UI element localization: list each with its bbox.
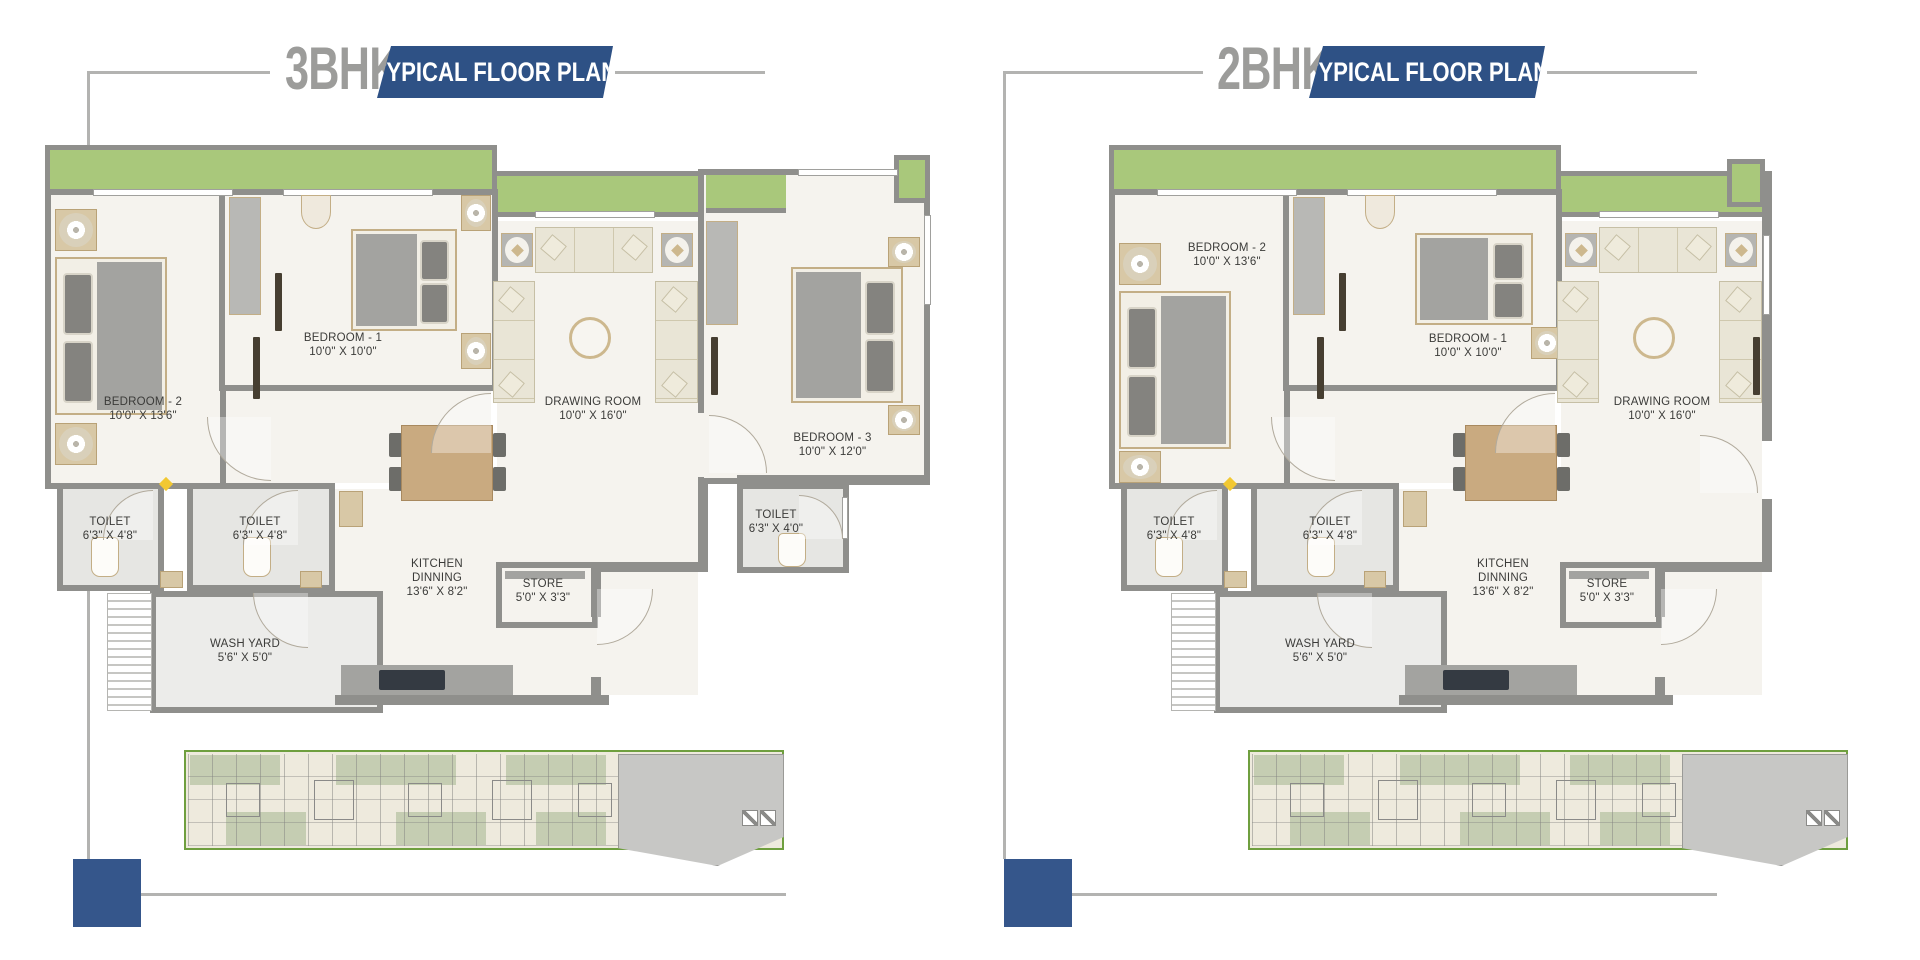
basin-fixture	[160, 571, 183, 588]
cushion	[1562, 371, 1589, 398]
tv-icon	[1317, 337, 1324, 399]
room-dims: 6'3" X 4'8"	[1114, 529, 1234, 543]
sofa-left	[493, 281, 535, 403]
basin-fixture	[1364, 571, 1386, 588]
room-dims: 6'3" X 4'0"	[716, 522, 836, 536]
room-label-bedroom3: BEDROOM - 310'0" X 12'0"	[760, 431, 905, 459]
wash-basin-icon	[1365, 195, 1395, 229]
pillow	[1493, 243, 1524, 280]
mattress	[356, 234, 417, 326]
nightstand	[55, 423, 97, 465]
keyplan-lift	[1824, 810, 1840, 826]
header-rule-right-2	[1547, 71, 1697, 74]
room-name: WASH YARD	[175, 637, 315, 651]
room-label-bedroom1: BEDROOM - 110'0" X 10'0"	[1398, 332, 1538, 360]
room-dims: 5'6" X 5'0"	[175, 651, 315, 665]
room-label-bedroom2: BEDROOM - 210'0" X 13'6"	[73, 395, 213, 423]
room-label-toilet-left: TOILET6'3" X 4'8"	[1114, 515, 1234, 543]
plan-title-banner-2bhk: TYPICAL FLOOR PLAN	[1309, 46, 1545, 98]
keyplan-core	[578, 783, 612, 817]
banner-text: TYPICAL FLOOR PLAN	[373, 57, 617, 88]
navy-corner-square-2	[1004, 859, 1072, 927]
chair	[1557, 467, 1570, 491]
room-dims: 5'0" X 3'3"	[1547, 591, 1667, 605]
pillow	[1493, 282, 1524, 319]
wall-drawing-right-lower	[1762, 499, 1772, 567]
nightstand	[461, 195, 491, 231]
banner-text: TYPICAL FLOOR PLAN	[1305, 57, 1549, 88]
window-bedroom3	[798, 169, 898, 176]
keyplan-lift	[1806, 810, 1822, 826]
lamp-icon	[892, 409, 916, 431]
room-dims: 10'0" X 12'0"	[760, 445, 905, 459]
wardrobe	[1293, 197, 1325, 315]
tv-icon	[1753, 337, 1760, 395]
nightstand	[888, 237, 920, 267]
nightstand	[1119, 243, 1161, 285]
keyplan-core	[1556, 780, 1596, 820]
bed-bedroom2	[1119, 291, 1231, 449]
tv-icon	[1339, 273, 1346, 331]
room-name: TOILET	[1114, 515, 1234, 529]
room-dims: 6'3" X 4'8"	[1270, 529, 1390, 543]
balcony-corner	[894, 155, 930, 203]
room-label-bedroom1: BEDROOM - 110'0" X 10'0"	[273, 331, 413, 359]
lamp-icon	[1123, 247, 1157, 281]
window-drawing-side	[1763, 235, 1770, 315]
stove-icon	[1443, 670, 1509, 690]
room-name: BEDROOM - 1	[273, 331, 413, 345]
chair	[493, 433, 506, 457]
keyplan-core	[408, 783, 442, 817]
window-drawing	[535, 211, 655, 218]
cushion	[1685, 234, 1712, 261]
window-bedroom2	[93, 189, 233, 196]
wardrobe	[229, 197, 261, 315]
chair	[1557, 433, 1570, 457]
pillow	[63, 273, 93, 336]
pillow	[1127, 307, 1157, 370]
cushion	[621, 234, 648, 261]
frame-bottom-line-2	[1072, 893, 1717, 896]
room-label-toilet-right: TOILET6'3" X 4'0"	[716, 508, 836, 536]
room-name: STORE	[1547, 577, 1667, 591]
lamp-icon	[1535, 331, 1559, 355]
room-dims: 6'3" X 4'8"	[200, 529, 320, 543]
key-plan-2bhk	[1248, 750, 1848, 850]
sofa-top	[1599, 227, 1717, 273]
toilet-wc-icon	[91, 537, 119, 577]
room-name: KITCHEN	[1433, 557, 1573, 571]
nightstand	[55, 209, 97, 251]
room-dims: 5'6" X 5'0"	[1250, 651, 1390, 665]
keyplan-lift	[760, 810, 776, 826]
key-plan-3bhk	[184, 750, 784, 850]
keyplan-lift	[742, 810, 758, 826]
room-name: BEDROOM - 3	[760, 431, 905, 445]
floor-plan-3bhk: BEDROOM - 210'0" X 13'6" BEDROOM - 110'0…	[43, 145, 938, 725]
room-name: KITCHEN	[367, 557, 507, 571]
lamp-icon	[59, 427, 93, 461]
keyplan-core	[1378, 780, 1418, 820]
mattress	[1420, 238, 1488, 320]
lamp-icon	[892, 241, 916, 263]
header-rule-right	[615, 71, 765, 74]
wall-drawing-right	[698, 482, 708, 568]
wall-kitchen-bottom	[1399, 695, 1673, 705]
kitchen-unit	[339, 491, 363, 527]
lamp-icon	[465, 337, 487, 365]
room-name: DRAWING ROOM	[523, 395, 663, 409]
room-name: BEDROOM - 2	[73, 395, 213, 409]
sofa-top	[535, 227, 653, 273]
balcony-bedrooms	[45, 145, 497, 195]
window-bedroom2	[1157, 189, 1297, 196]
nightstand	[461, 333, 491, 369]
room-label-drawing: DRAWING ROOM10'0" X 16'0"	[1592, 395, 1732, 423]
lamp-icon	[59, 213, 93, 247]
room-dims: 10'0" X 13'6"	[1157, 255, 1297, 269]
keyplan-core	[226, 783, 260, 817]
cushion	[1604, 234, 1631, 261]
pillow	[865, 281, 895, 335]
stove-icon	[379, 670, 445, 690]
balcony-bedrooms	[1109, 145, 1561, 195]
sofa-right	[655, 281, 698, 403]
cushion	[1725, 286, 1752, 313]
window-bedroom3-side	[924, 215, 931, 305]
pillow	[420, 283, 448, 324]
sofa-left	[1557, 281, 1599, 403]
room-label-store: STORE5'0" X 3'3"	[483, 577, 603, 605]
door-opening-bedroom3	[698, 413, 708, 477]
lamp-icon	[465, 199, 487, 227]
tv-icon	[711, 337, 718, 395]
round-table	[1633, 317, 1675, 359]
cushion	[498, 286, 525, 313]
room-dims: 10'0" X 10'0"	[273, 345, 413, 359]
room-dims: 10'0" X 16'0"	[1592, 409, 1732, 423]
chair	[493, 467, 506, 491]
round-table	[569, 317, 611, 359]
plan-title-banner-3bhk: TYPICAL FLOOR PLAN	[377, 46, 613, 98]
room-name: BEDROOM - 2	[1157, 241, 1297, 255]
kitchen-unit	[1403, 491, 1427, 527]
pillow	[420, 240, 448, 281]
bed-bedroom2	[55, 257, 167, 415]
basin-fixture	[1224, 571, 1247, 588]
room-label-bedroom2: BEDROOM - 210'0" X 13'6"	[1157, 241, 1297, 269]
room-label-toilet-left: TOILET6'3" X 4'8"	[50, 515, 170, 543]
ceiling-fixture-icon	[661, 233, 693, 267]
header-rule-left-2	[1003, 71, 1203, 74]
room-name: STORE	[483, 577, 603, 591]
cushion	[498, 371, 525, 398]
ceiling-fixture-icon	[1725, 233, 1757, 267]
bed-bedroom1	[1415, 233, 1533, 325]
navy-corner-square	[73, 859, 141, 927]
basin-fixture	[300, 571, 322, 588]
room-name: TOILET	[716, 508, 836, 522]
ceiling-fixture-icon	[501, 233, 533, 267]
room-dims: 10'0" X 10'0"	[1398, 346, 1538, 360]
room-dims: 5'0" X 3'3"	[483, 591, 603, 605]
pillow	[1127, 375, 1157, 438]
wall-kitchen-bottom	[335, 695, 609, 705]
cushion	[1725, 371, 1752, 398]
frame-bracket-vertical-2	[1003, 71, 1006, 859]
room-name: DRAWING ROOM	[1592, 395, 1732, 409]
cushion	[661, 286, 688, 313]
room-label-toilet-mid: TOILET6'3" X 4'8"	[1270, 515, 1390, 543]
keyplan-core	[1290, 783, 1324, 817]
toilet-wc-icon	[1155, 537, 1183, 577]
keyplan-core	[1472, 783, 1506, 817]
lamp-icon	[1123, 455, 1157, 479]
room-label-drawing: DRAWING ROOM10'0" X 16'0"	[523, 395, 663, 423]
mattress	[1161, 296, 1226, 444]
room-name: TOILET	[50, 515, 170, 529]
room-label-store: STORE5'0" X 3'3"	[1547, 577, 1667, 605]
window-drawing	[1599, 211, 1719, 218]
floor-plan-2bhk: BEDROOM - 210'0" X 13'6" BEDROOM - 110'0…	[1107, 145, 1787, 725]
room-dims: 6'3" X 4'8"	[50, 529, 170, 543]
wash-yard-louver	[107, 593, 152, 711]
keyplan-core	[314, 780, 354, 820]
keyplan-core	[1642, 783, 1676, 817]
mattress	[796, 272, 861, 398]
pillow	[63, 341, 93, 404]
balcony-corner	[1727, 159, 1765, 207]
wash-yard-louver	[1171, 593, 1216, 711]
pillow	[865, 339, 895, 393]
room-dims: 10'0" X 13'6"	[73, 409, 213, 423]
frame-bottom-line	[141, 893, 786, 896]
nightstand	[1119, 451, 1161, 483]
cushion	[661, 371, 688, 398]
tv-icon	[275, 273, 282, 331]
cushion	[540, 234, 567, 261]
window-toilet-right	[842, 497, 848, 539]
room-dims: 10'0" X 16'0"	[523, 409, 663, 423]
room-label-wash-yard: WASH YARD5'6" X 5'0"	[1250, 637, 1390, 665]
balcony-bedroom3	[706, 175, 786, 213]
wardrobe	[706, 221, 738, 325]
cushion	[1562, 286, 1589, 313]
room-name: TOILET	[200, 515, 320, 529]
room-label-wash-yard: WASH YARD5'6" X 5'0"	[175, 637, 315, 665]
room-name: WASH YARD	[1250, 637, 1390, 651]
mattress	[97, 262, 162, 410]
bed-bedroom1	[351, 229, 457, 331]
wash-basin-icon	[301, 195, 331, 229]
header-rule-left	[88, 71, 270, 74]
room-label-toilet-mid: TOILET6'3" X 4'8"	[200, 515, 320, 543]
ceiling-fixture-icon	[1565, 233, 1597, 267]
room-name: TOILET	[1270, 515, 1390, 529]
tv-icon	[253, 337, 260, 399]
keyplan-core	[492, 780, 532, 820]
room-name: BEDROOM - 1	[1398, 332, 1538, 346]
bed-bedroom3	[791, 267, 903, 403]
